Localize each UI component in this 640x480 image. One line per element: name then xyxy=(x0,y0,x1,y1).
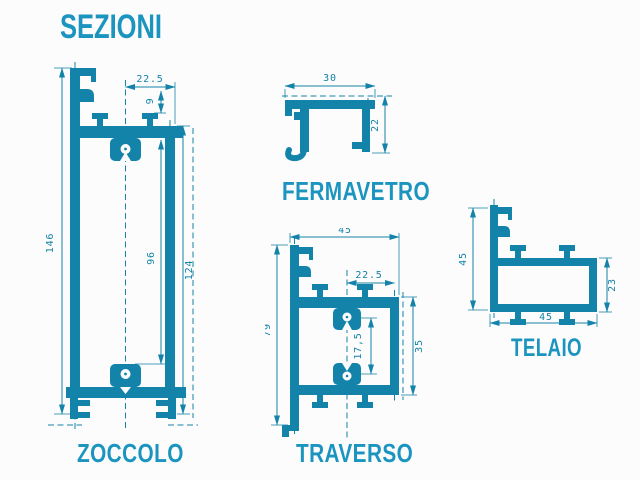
fermavetro-dim-width: 30 xyxy=(323,73,337,84)
zoccolo-dim-tab: 9 xyxy=(145,98,156,105)
fermavetro-drawing: 30 22 xyxy=(278,68,398,178)
fermavetro-dim-height: 22 xyxy=(370,118,381,132)
zoccolo-dim-inner: 96 xyxy=(146,251,157,265)
telaio-label: TELAIO xyxy=(511,334,582,363)
fermavetro-profile xyxy=(285,100,375,158)
zoccolo-dim-total-height: 146 xyxy=(45,233,56,253)
telaio-dim-width: 45 xyxy=(539,312,553,323)
zoccolo-dim-right: 124 xyxy=(184,260,195,280)
telaio-dim-right-height: 23 xyxy=(607,278,618,292)
traverso-dim-width: 45 xyxy=(338,228,352,236)
zoccolo-label: ZOCCOLO xyxy=(77,438,184,469)
traverso-dim-half-width: 22.5 xyxy=(355,270,382,281)
traverso-dim-height: 79 xyxy=(265,323,273,337)
fermavetro-label: FERMAVETRO xyxy=(282,176,430,207)
page-title: SEZIONI xyxy=(60,8,162,47)
zoccolo-dim-half-width: 22.5 xyxy=(136,74,163,85)
sezioni-drawing-sheet: SEZIONI xyxy=(0,0,640,480)
telaio-dim-left-height: 45 xyxy=(458,252,469,266)
traverso-dim-chamber: 35 xyxy=(414,339,425,353)
telaio-drawing: 45 23 45 xyxy=(458,196,640,336)
traverso-drawing: 45 79 22.5 17,5 35 xyxy=(265,228,430,440)
traverso-centerlines xyxy=(295,238,404,438)
traverso-label: TRAVERSO xyxy=(296,438,413,469)
traverso-dim-clip-gap: 17,5 xyxy=(353,332,364,359)
zoccolo-drawing: 146 22.5 9 96 124 xyxy=(40,58,205,438)
telaio-profile xyxy=(490,205,597,325)
